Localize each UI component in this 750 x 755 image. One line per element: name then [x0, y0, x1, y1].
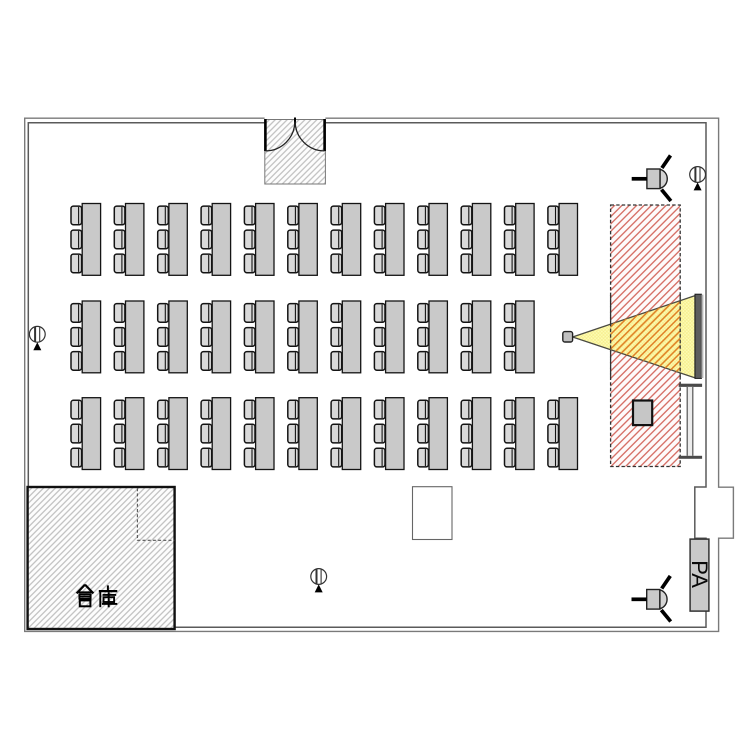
svg-text:PA: PA	[687, 560, 712, 588]
